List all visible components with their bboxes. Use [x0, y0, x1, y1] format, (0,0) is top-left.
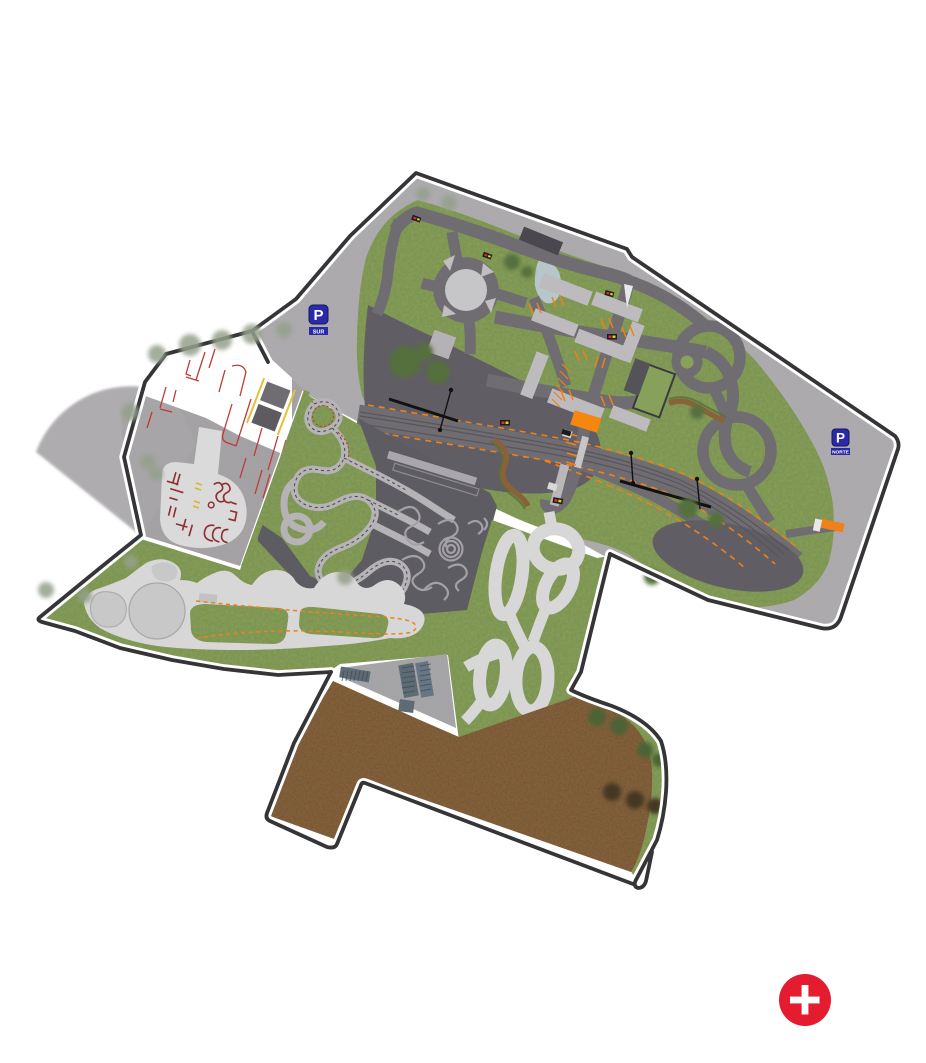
- svg-text:P: P: [836, 431, 845, 446]
- svg-text:P: P: [313, 307, 323, 324]
- svg-text:NORTE: NORTE: [832, 450, 850, 456]
- svg-text:SUR: SUR: [313, 330, 325, 336]
